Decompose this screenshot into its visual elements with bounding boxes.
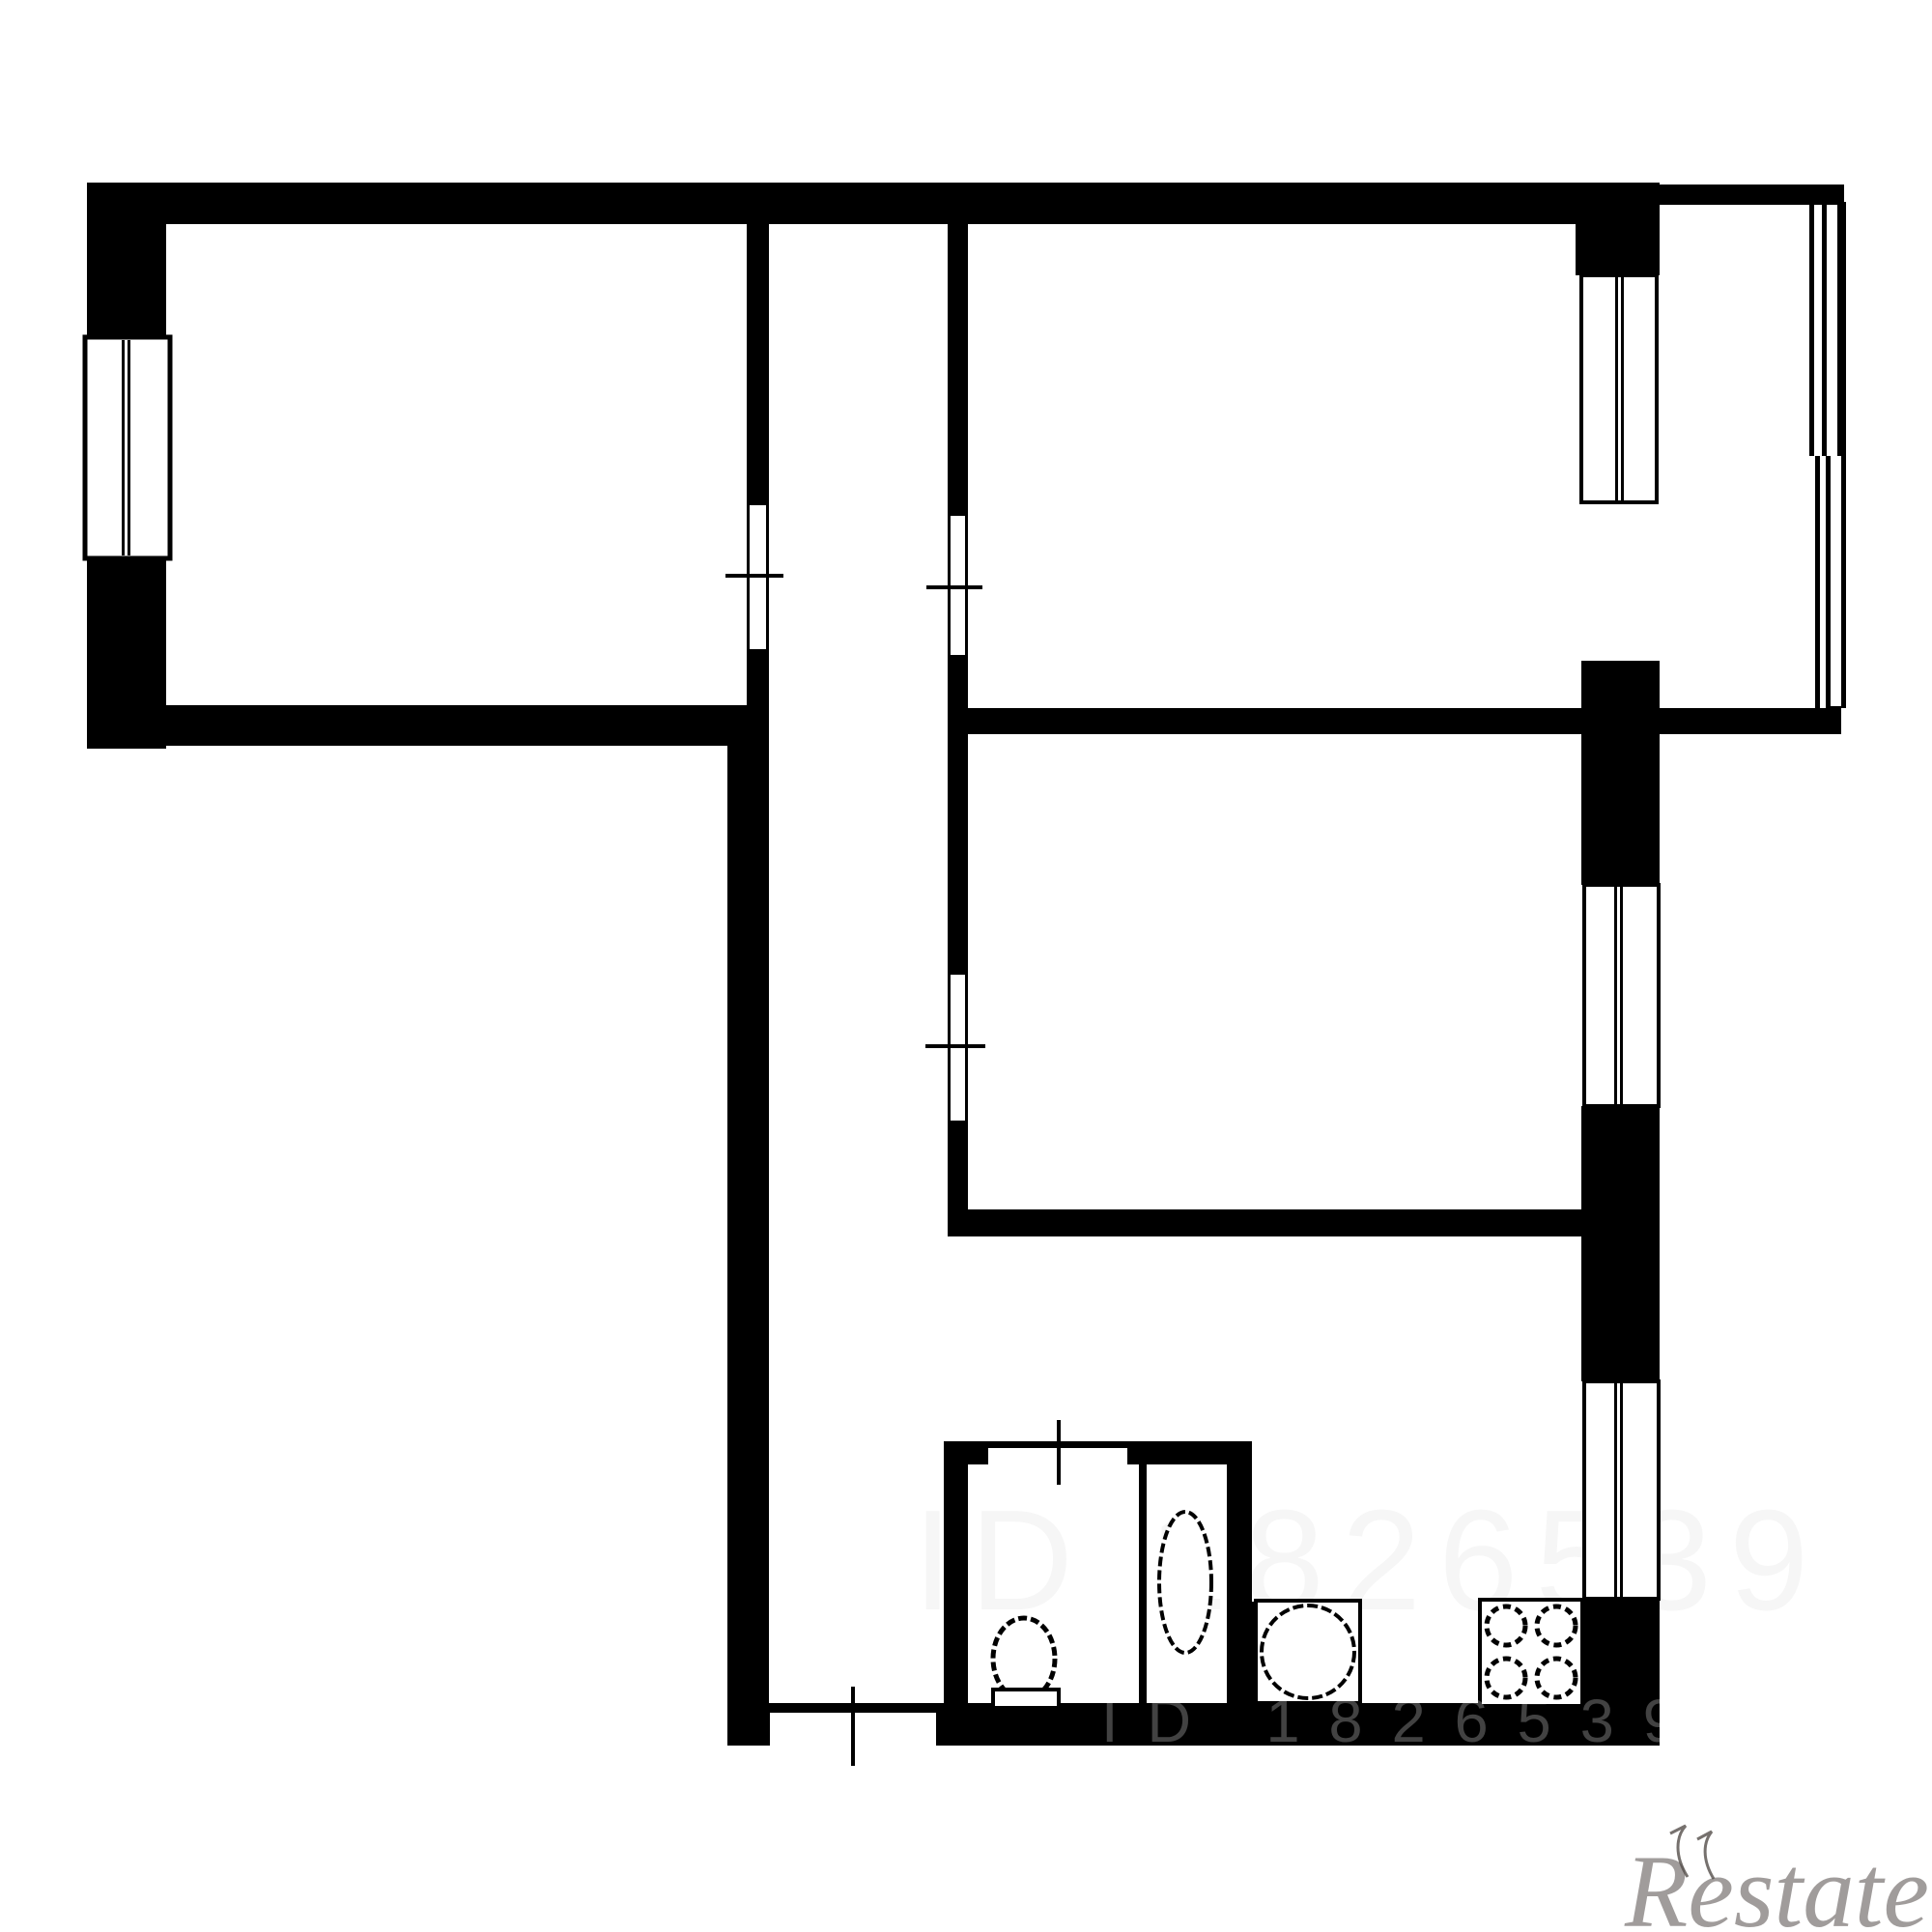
svg-text:ID 1826539: ID 1826539 [913,1481,1826,1640]
svg-text:ID 1826539: ID 1826539 [1101,1688,1706,1755]
svg-text:Restate: Restate [1624,1835,1929,1932]
